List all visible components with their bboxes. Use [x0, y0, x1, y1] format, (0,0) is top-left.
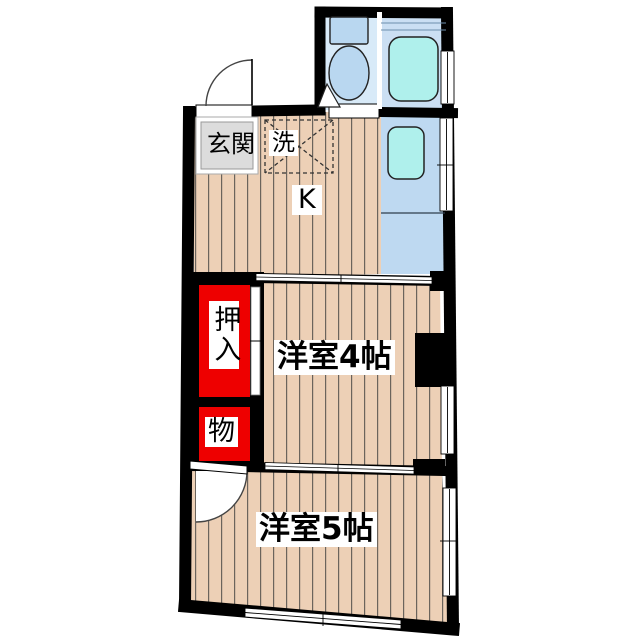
bath-partition: [377, 12, 382, 109]
entrance-door: [196, 59, 252, 118]
laundry-label: 洗: [269, 130, 298, 156]
floor-plan: 玄関 洗 K 押入 物 洋室4帖 洋室5帖: [0, 0, 640, 640]
entrance-label: 玄関: [204, 131, 258, 158]
kitchen-sink: [388, 127, 424, 179]
bathtub: [389, 37, 438, 101]
closet-fusuma-door: [250, 287, 262, 395]
closet-label: 押入: [209, 301, 239, 369]
room5-label: 洋室5帖: [256, 512, 377, 547]
wall-junction-right-upper: [430, 271, 453, 291]
storage-label: 物: [205, 417, 238, 447]
kitchen-label: K: [292, 185, 322, 215]
wall-junction-right-lower: [413, 459, 445, 474]
room4-label: 洋室4帖: [274, 340, 395, 375]
pillar: [415, 333, 453, 387]
